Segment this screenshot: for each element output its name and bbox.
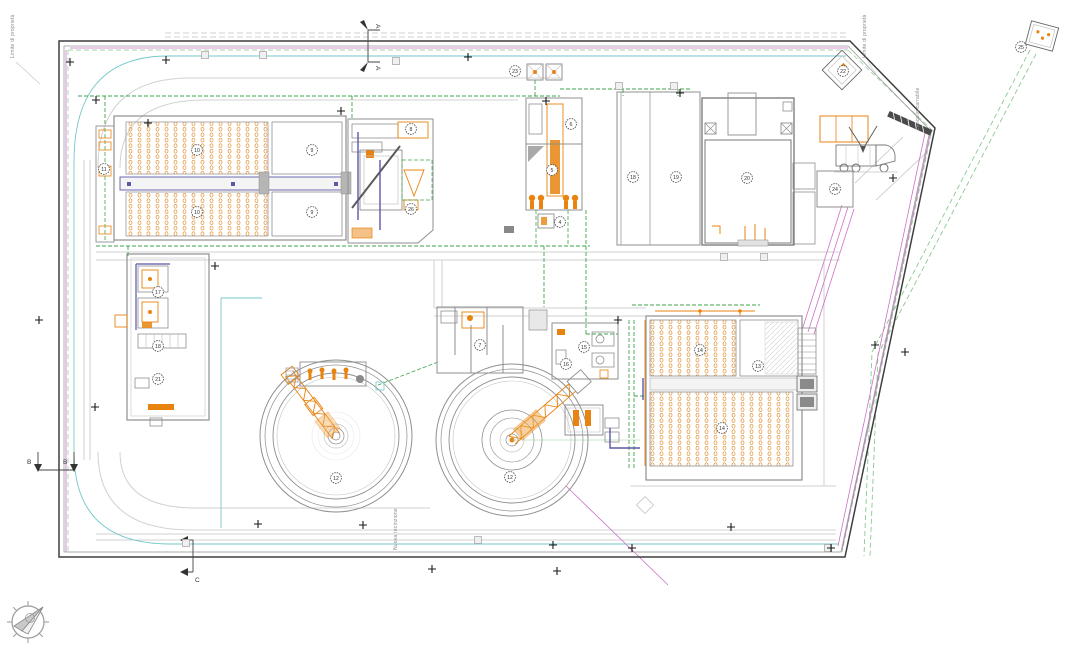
equipment-tag-8: 8	[406, 124, 417, 135]
survey-monument	[393, 58, 400, 65]
svg-text:7: 7	[479, 343, 482, 349]
svg-text:20: 20	[744, 176, 750, 182]
survey-cross	[871, 341, 879, 349]
equipment-tag-11: 11	[99, 164, 110, 175]
property-boundary	[59, 41, 935, 557]
contact-tank	[437, 307, 547, 373]
equipment-tag-21: 21	[153, 374, 164, 385]
survey-cross	[676, 89, 684, 97]
equipment-tag-14: 14	[695, 345, 706, 356]
svg-text:15: 15	[581, 345, 587, 351]
equipment-tag-22: 22	[838, 66, 849, 77]
entrance-gate	[887, 111, 932, 136]
svg-text:25: 25	[1018, 45, 1024, 51]
svg-text:18: 18	[155, 344, 161, 350]
survey-cross	[91, 403, 99, 411]
svg-text:21: 21	[155, 377, 161, 383]
svg-text:22: 22	[840, 69, 846, 75]
clarifier-2	[436, 364, 653, 516]
svg-text:23: 23	[512, 69, 518, 75]
equipment-tag-7: 7	[475, 340, 486, 351]
equipment-tag-19: 19	[671, 172, 682, 183]
section-b-label-right: B	[63, 459, 67, 466]
svg-text:24: 24	[832, 187, 838, 193]
equipment-tag-12: 12	[505, 472, 516, 483]
equipment-tag-9: 9	[307, 145, 318, 156]
section-b-label-left: B	[27, 459, 31, 466]
valve-chamber	[529, 310, 547, 330]
survey-cross	[359, 521, 367, 529]
pump-row	[529, 195, 578, 209]
survey-monument	[761, 254, 768, 261]
svg-text:14: 14	[697, 348, 703, 354]
survey-cross	[628, 544, 636, 552]
equipment-tag-10: 10	[192, 207, 203, 218]
svg-text:6: 6	[570, 122, 573, 128]
svg-text:9: 9	[311, 148, 314, 154]
survey-monument	[616, 83, 623, 90]
equipment-tag-20: 20	[742, 173, 753, 184]
survey-monument	[671, 83, 678, 90]
equipment-tag-23: 23	[510, 66, 521, 77]
truck	[834, 145, 898, 172]
svg-text:26: 26	[408, 207, 414, 213]
electrical-building	[115, 254, 209, 426]
equipment-tag-16: 16	[561, 359, 572, 370]
equipment-building	[348, 119, 514, 243]
svg-text:12: 12	[507, 475, 513, 481]
corner-utility-box	[1025, 21, 1058, 51]
survey-cross	[549, 541, 557, 549]
survey-cross	[428, 565, 436, 573]
equipment-tag-13: 13	[753, 361, 764, 372]
clarifier-1	[260, 360, 412, 512]
survey-cross	[464, 53, 472, 61]
survey-cross	[162, 56, 170, 64]
section-c-label: C	[195, 577, 200, 584]
svg-text:5: 5	[551, 168, 554, 174]
north-arrow-compass	[7, 601, 49, 643]
equipment-tag-17: 17	[153, 287, 164, 298]
svg-text:11: 11	[101, 167, 106, 173]
svg-text:10: 10	[194, 148, 200, 154]
sludge-pump-box	[565, 405, 603, 435]
survey-monument	[721, 254, 728, 261]
main-hall-building	[702, 93, 815, 246]
svg-text:8: 8	[410, 127, 413, 133]
equipment-tag-25: 25	[1016, 42, 1027, 53]
survey-cross	[901, 348, 909, 356]
survey-cross	[66, 58, 74, 66]
equipment-tag-4: 4	[555, 217, 566, 228]
survey-cross	[553, 567, 561, 575]
equipment-tag-18: 18	[628, 172, 639, 183]
survey-cross	[337, 107, 345, 115]
equipment-tag-10: 10	[192, 145, 203, 156]
hopper	[404, 170, 424, 196]
boundary-label-left: Limite di proprietà	[10, 14, 16, 58]
svg-text:4: 4	[559, 220, 562, 226]
parking-stalls	[820, 116, 868, 142]
survey-cross	[35, 316, 43, 324]
equipment-tag-9: 9	[307, 207, 318, 218]
screw-conveyor	[352, 146, 400, 208]
section-a-label-bottom: A	[374, 66, 381, 71]
basin-stairs	[798, 328, 816, 374]
internal-roads	[84, 33, 927, 540]
survey-monument	[202, 52, 209, 59]
svg-text:16: 16	[563, 362, 569, 368]
equipment-tag-26: 26	[406, 204, 417, 215]
equipment-tag-15: 15	[579, 342, 590, 353]
section-a-label-top: A	[374, 24, 381, 29]
svg-text:12: 12	[333, 476, 339, 482]
right-aeration-basin	[643, 309, 817, 480]
gate-label: cancello carrabile	[915, 87, 921, 130]
equipment-tag-6: 6	[566, 119, 577, 130]
survey-monument	[260, 52, 267, 59]
svg-text:17: 17	[155, 290, 161, 296]
equipment-tag-18: 18	[153, 341, 164, 352]
equipment-tags: 1110109982623654181920222425171821715161…	[99, 42, 1027, 484]
svg-text:14: 14	[719, 426, 725, 432]
site-plan-drawing: A A B B C Limite di proprietà Limite di …	[0, 0, 1080, 650]
gate-direction-arrow	[849, 126, 877, 153]
fence-label: Nuova recinzione	[393, 508, 399, 550]
svg-text:18: 18	[630, 175, 636, 181]
section-marker-b: B B	[27, 452, 78, 472]
survey-cross	[211, 262, 219, 270]
text-labels: Limite di proprietà Limite di proprietà …	[10, 14, 921, 550]
svg-text:13: 13	[755, 364, 761, 370]
survey-cross	[92, 96, 100, 104]
storage-bays	[617, 92, 700, 245]
equipment-tag-5: 5	[547, 165, 558, 176]
survey-monument	[475, 537, 482, 544]
equipment-tag-12: 12	[331, 473, 342, 484]
survey-monument	[183, 540, 190, 547]
aeration-basins	[96, 116, 351, 242]
survey-cross	[254, 520, 262, 528]
svg-text:19: 19	[673, 175, 679, 181]
svg-text:10: 10	[194, 210, 200, 216]
equipment-tag-24: 24	[830, 184, 841, 195]
equipment-tag-14: 14	[717, 423, 728, 434]
boundary-label-right: Limite di proprietà	[862, 14, 868, 58]
svg-text:9: 9	[311, 210, 314, 216]
basin-walkway	[650, 378, 798, 390]
